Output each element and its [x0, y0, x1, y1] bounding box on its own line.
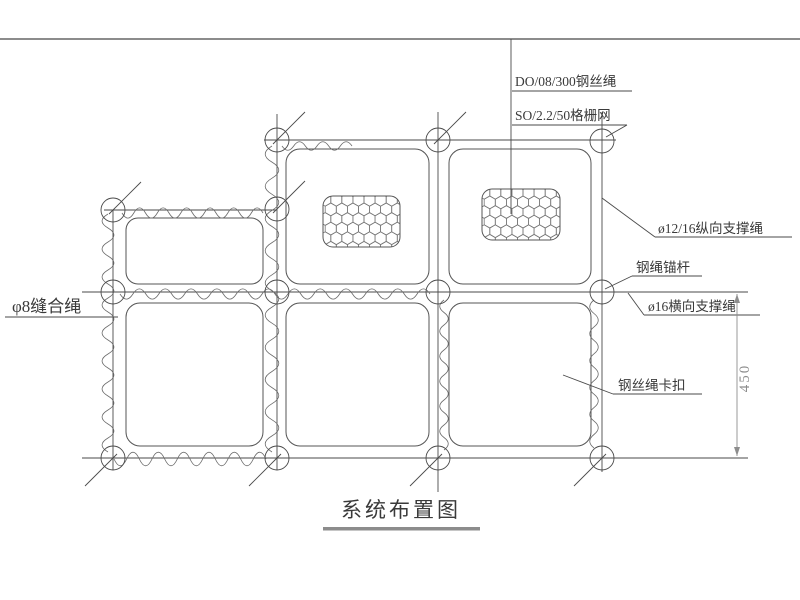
system-layout-drawing: DO/08/300钢丝绳 SO/2.2/50格栅网 ø12/16纵向支撑绳 钢绳… [0, 0, 800, 600]
callout-seam-rope: φ8缝合绳 [5, 297, 118, 317]
honeycomb-cell [518, 234, 529, 247]
honeycomb-cell [397, 232, 408, 245]
transverse-rope-label: ø16横向支撑绳 [648, 299, 736, 314]
honeycomb-cell [495, 234, 506, 247]
seam-rope-label: φ8缝合绳 [12, 297, 81, 316]
grid-mesh-patch-border [482, 189, 560, 240]
seam-rope-stitch [114, 452, 266, 466]
drawing-title-block: 系统布置图 [323, 498, 480, 531]
seam-rope-stitch [440, 300, 449, 450]
dimension-value: 450 [737, 364, 753, 393]
cad-drawing-sheet: DO/08/300钢丝绳 SO/2.2/50格栅网 ø12/16纵向支撑绳 钢绳… [0, 0, 800, 600]
diamond-net-panel [126, 303, 263, 446]
grid-mesh-patch-border [323, 196, 400, 247]
callout-transverse-rope: ø16横向支撑绳 [628, 293, 760, 315]
leader-line [602, 198, 655, 237]
honeycomb-cell [381, 241, 392, 254]
callout-longitudinal-rope: ø12/16纵向支撑绳 [602, 198, 792, 237]
honeycomb-mesh [479, 186, 568, 247]
dimension-arrow-down [734, 447, 740, 456]
drawing-title: 系统布置图 [341, 498, 461, 522]
honeycomb-cell [529, 234, 540, 247]
honeycomb-cell [325, 241, 336, 254]
grid-mesh-label: SO/2.2/50格栅网 [515, 108, 611, 123]
callout-rope-anchor: 钢绳锚杆 [605, 260, 702, 289]
diamond-net-panel [286, 303, 429, 446]
honeycomb-cell [359, 241, 370, 254]
title-underline [323, 527, 480, 531]
seam-rope-stitch [102, 214, 114, 452]
seam-ropes [102, 142, 598, 466]
diamond-net-panel [449, 303, 591, 446]
honeycomb-cell [347, 241, 358, 254]
honeycomb-cell [506, 234, 517, 247]
seam-rope-stitch [120, 289, 430, 299]
leader-line [563, 375, 613, 394]
longitudinal-rope-label: ø12/16纵向支撑绳 [658, 221, 763, 236]
seam-rope-stitch [122, 208, 263, 218]
wire-rope-net-panel [286, 149, 429, 284]
wire-rope-net-panel [126, 218, 263, 284]
callout-wire-rope: DO/08/300钢丝绳 [511, 39, 632, 214]
honeycomb-cell [551, 234, 562, 247]
rope-clip-label: 钢丝绳卡扣 [618, 378, 686, 393]
net-panels [126, 149, 591, 446]
leader-line [628, 293, 644, 315]
anchor-ticks [85, 112, 606, 486]
honeycomb-cell [336, 241, 347, 254]
rope-anchor-label: 钢绳锚杆 [636, 260, 690, 275]
honeycomb-cell [540, 234, 551, 247]
wire-rope-label: DO/08/300钢丝绳 [515, 74, 616, 89]
grid-mesh-patches [320, 186, 568, 254]
callout-rope-clip: 钢丝绳卡扣 [563, 375, 702, 394]
honeycomb-cell [370, 241, 381, 254]
honeycomb-cell [484, 234, 495, 247]
dimension-450: 450 [734, 294, 753, 456]
callout-grid-mesh: SO/2.2/50格栅网 [512, 108, 627, 137]
